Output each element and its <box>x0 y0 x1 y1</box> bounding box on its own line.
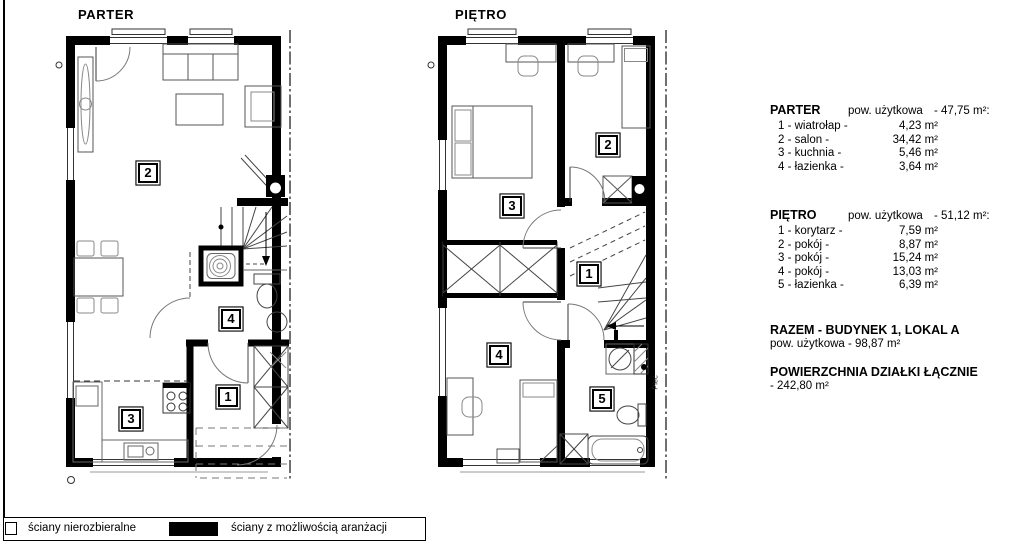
room-name: 2 - salon - <box>778 134 829 147</box>
summary-row: 1 - wiatrołap -4,23 m² <box>770 120 938 133</box>
summary-parter: PARTERpow. użytkowa- 47,75 m²: 1 - wiatr… <box>770 104 1020 174</box>
room-label-parter-2: 2 <box>138 163 158 183</box>
room-area: 6,39 m² <box>899 279 938 292</box>
parter-bathroom <box>150 248 287 383</box>
summary-building-total: RAZEM - BUDYNEK 1, LOKAL A pow. użytkowa… <box>770 323 1020 351</box>
room-name: 4 - łazienka - <box>778 161 844 174</box>
room-label-pietro-4: 4 <box>489 345 509 365</box>
pillow <box>523 383 554 397</box>
bed <box>622 46 650 128</box>
summary-row: 4 - pokój -13,03 m² <box>770 266 938 279</box>
pietro-windows <box>428 29 645 472</box>
room-area: 15,24 m² <box>893 252 938 265</box>
room-name: 5 - łazienka - <box>778 279 844 292</box>
room-name: 1 - wiatrołap - <box>778 120 848 133</box>
summary-parter-area-total: - 47,75 m²: <box>934 105 990 118</box>
summary-row: 3 - kuchnia -5,46 m² <box>770 147 938 160</box>
desk <box>506 44 556 62</box>
summary-pietro-area-label: pow. użytkowa <box>848 210 934 223</box>
room-area: 5,46 m² <box>899 147 938 160</box>
plot-total-area: - 242,80 m² <box>770 379 1020 393</box>
summary-parter-header: PARTERpow. użytkowa- 47,75 m²: <box>770 104 1020 118</box>
building-total-title: RAZEM - BUDYNEK 1, LOKAL A <box>770 323 1020 337</box>
legend-swatch-outline-wall <box>5 522 17 535</box>
room-name: 3 - kuchnia - <box>778 147 841 160</box>
parter-salon-furniture <box>78 44 281 152</box>
dining-table <box>74 258 123 296</box>
pietro-wardrobes <box>443 240 557 298</box>
room-label-pietro-2: 2 <box>598 135 618 155</box>
room-area: 7,59 m² <box>899 225 938 238</box>
legend-label-arrangeable-walls: ściany z możliwością aranżacji <box>231 522 387 534</box>
room-label-pietro-3: 3 <box>502 196 522 216</box>
pietro-room4-furniture <box>447 378 557 463</box>
room-label-parter-1: 1 <box>218 387 238 407</box>
summary-row: 1 - korytarz -7,59 m² <box>770 225 938 238</box>
pietro-room2-furniture <box>568 44 650 203</box>
building-total-area: pow. użytkowa - 98,87 m² <box>770 337 1020 351</box>
pietro-room3-furniture <box>452 44 556 178</box>
summary-parter-title: PARTER <box>770 104 848 117</box>
summary-row: 5 - łazienka -6,39 m² <box>770 279 938 292</box>
room-name: 4 - pokój - <box>778 266 829 279</box>
summary-row: 4 - łazienka -3,64 m² <box>770 161 938 174</box>
summary-row: 3 - pokój -15,24 m² <box>770 252 938 265</box>
desk <box>447 378 473 435</box>
toilet-bowl <box>617 406 639 424</box>
summary-pietro-title: PIĘTRO <box>770 209 848 222</box>
pillow <box>455 143 471 175</box>
page-border-line <box>3 0 5 517</box>
room-name: 2 - pokój - <box>778 239 829 252</box>
room-label-parter-4: 4 <box>221 309 241 329</box>
room-name: 3 - pokój - <box>778 252 829 265</box>
parter-plan <box>56 29 290 484</box>
room-label-pietro-1: 1 <box>579 264 599 284</box>
summary-pietro-area-total: - 51,12 m²: <box>934 210 990 223</box>
pillow <box>455 110 471 141</box>
summary-parter-area-label: pow. użytkowa <box>848 105 934 118</box>
pietro-plan <box>428 29 666 481</box>
chair <box>462 397 482 417</box>
summary-row: 2 - pokój -8,87 m² <box>770 239 938 252</box>
pietro-outer-walls <box>443 41 651 463</box>
chair <box>578 56 598 76</box>
plot-total-title: POWIERZCHNIA DZIAŁKI ŁĄCZNIE <box>770 365 1020 379</box>
coffee-table <box>176 94 223 125</box>
parter-wardrobe <box>254 346 288 428</box>
room-area: 4,23 m² <box>899 120 938 133</box>
pillow <box>625 49 648 62</box>
chair <box>518 56 538 76</box>
double-bed <box>452 106 532 178</box>
room-area: 34,42 m² <box>893 134 938 147</box>
furnace-annotation: Piec <box>651 370 660 396</box>
summary-row: 2 - salon -34,42 m² <box>770 134 938 147</box>
room-name: 1 - korytarz - <box>778 225 843 238</box>
legend-swatch-filled-wall <box>169 522 218 536</box>
room-label-pietro-5: 5 <box>592 389 612 409</box>
room-area: 3,64 m² <box>899 161 938 174</box>
summary-pietro-header: PIĘTROpow. użytkowa- 51,12 m²: <box>770 209 1020 223</box>
desk <box>568 44 614 62</box>
legend: ściany nierozbieralne ściany z możliwośc… <box>3 517 426 541</box>
legend-label-fixed-walls: ściany nierozbieralne <box>28 522 136 534</box>
floor-plan-page: PARTER PIĘTRO <box>0 0 1024 542</box>
summary-pietro: PIĘTROpow. użytkowa- 51,12 m²: 1 - koryt… <box>770 209 1020 292</box>
bed <box>520 380 557 462</box>
room-area: 8,87 m² <box>899 239 938 252</box>
summary-plot-total: POWIERZCHNIA DZIAŁKI ŁĄCZNIE - 242,80 m² <box>770 365 1020 393</box>
cabinet <box>78 57 93 152</box>
room-label-parter-3: 3 <box>121 409 141 429</box>
room-area: 13,03 m² <box>893 266 938 279</box>
sofa <box>163 44 238 80</box>
parter-dining-set <box>74 241 123 313</box>
